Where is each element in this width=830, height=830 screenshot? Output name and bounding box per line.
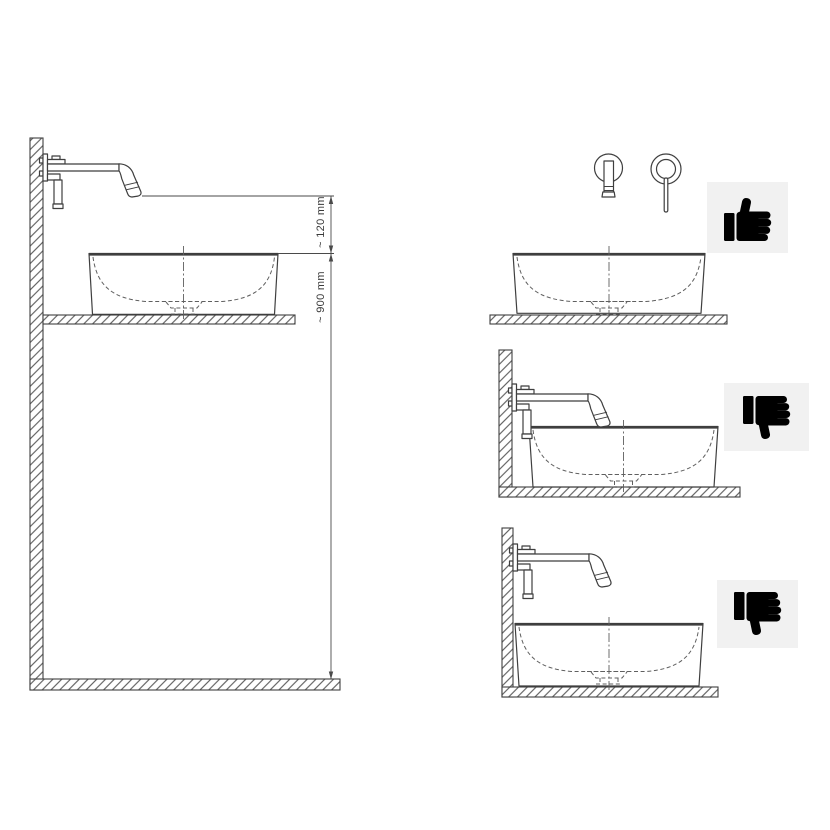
installation-diagram-page: ~ 120 mm ~ 900 mm [0, 0, 830, 830]
mixer-handle [54, 180, 62, 204]
panel-front-view-correct [490, 154, 788, 324]
floor-section [502, 687, 718, 697]
floor-section [30, 679, 340, 690]
countertop-basin [529, 420, 718, 492]
spout-outlet [588, 394, 610, 427]
spout-outlet [589, 554, 611, 587]
spout-outlet [119, 164, 141, 197]
countertop-section [490, 315, 727, 324]
wall-mounted-mixer [510, 544, 612, 599]
countertop-basin [515, 617, 703, 690]
wall-section [30, 138, 43, 690]
mixer-handle [524, 570, 532, 594]
basin-front-view [513, 246, 705, 321]
wall-section [499, 350, 512, 497]
countertop-basin [89, 246, 278, 321]
floor-section [499, 487, 740, 497]
wall-mounted-mixer [40, 154, 142, 209]
dimension-label-spout-to-rim: ~ 120 mm [315, 196, 327, 248]
spout-front-view [595, 154, 623, 197]
handle-front-view [651, 154, 681, 212]
main-side-view-diagram: ~ 120 mm ~ 900 mm [30, 138, 340, 690]
countertop-section [43, 315, 295, 324]
dimension-label-rim-to-floor: ~ 900 mm [315, 271, 327, 323]
mixer-handle [523, 410, 531, 434]
panel-side-view-spout-too-high [502, 528, 798, 697]
diagram-canvas: ~ 120 mm ~ 900 mm [0, 0, 830, 830]
panel-side-view-spout-too-low [499, 350, 809, 497]
